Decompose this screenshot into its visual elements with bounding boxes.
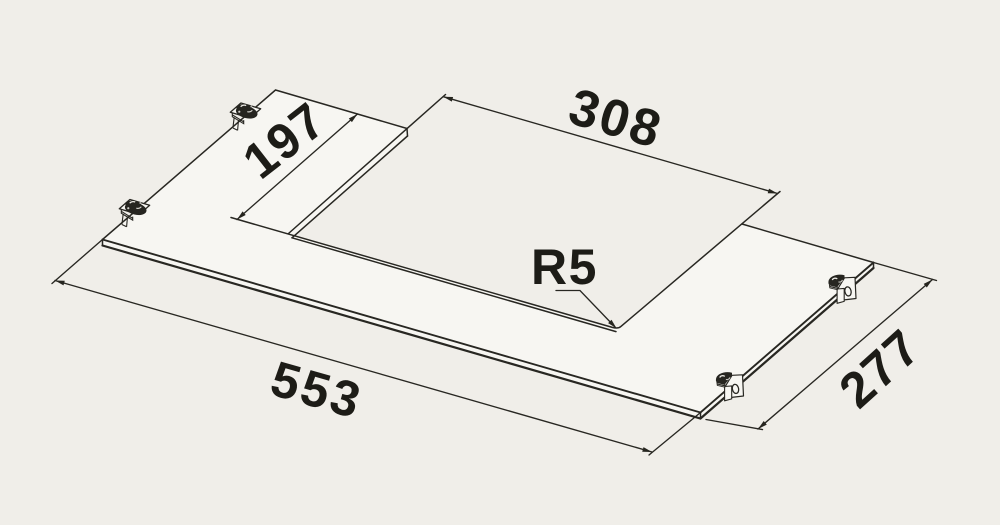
svg-text:R5: R5	[531, 239, 598, 295]
